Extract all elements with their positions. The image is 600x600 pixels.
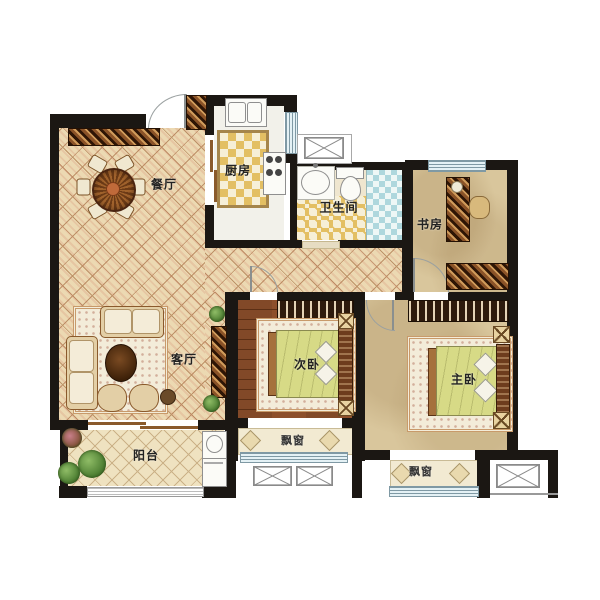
armchair: [129, 384, 159, 412]
stool: [160, 389, 176, 405]
corridor-floor: [205, 245, 410, 292]
master-wardrobe: [408, 300, 509, 322]
room-label-master: 主卧: [451, 371, 477, 388]
kitchen-sliding-door: [214, 170, 217, 202]
flower-pot-icon: [62, 428, 82, 448]
nightstand: [493, 412, 510, 429]
master-headboard: [496, 344, 510, 420]
study-window: [428, 160, 486, 172]
room-label-study: 书房: [417, 216, 443, 233]
room-label-bay-window: 飘窗: [409, 463, 433, 479]
coffee-table: [105, 344, 137, 382]
nightstand: [493, 326, 510, 343]
master-door-leaf: [392, 300, 394, 330]
wall-segment: [402, 162, 413, 300]
master-bay-glass: [389, 486, 479, 497]
ac-unit-icon: [253, 466, 292, 486]
potted-plant-icon: [203, 395, 220, 412]
dining-chair: [77, 179, 91, 196]
ac-unit-icon: [496, 464, 540, 488]
wall-segment: [205, 240, 302, 248]
bedroom2-door-leaf: [250, 266, 252, 292]
desk-lamp-icon: [451, 181, 463, 193]
bedroom2-bay-glass: [240, 452, 348, 463]
room-label-bathroom: 卫生间: [319, 199, 358, 216]
room-label-living: 客厅: [171, 351, 197, 368]
room-label-bedroom2: 次卧: [294, 356, 320, 373]
ac-unit-icon: [304, 137, 344, 159]
balcony-sliding-door: [88, 422, 146, 425]
washing-machine-lid-line: [204, 462, 223, 464]
room-label-dining: 餐厅: [151, 176, 177, 193]
entry-door-arc: [148, 94, 187, 129]
kitchen-sliding-door: [210, 140, 213, 172]
balcony-window: [87, 487, 204, 497]
bathroom-door-threshold: [302, 241, 340, 249]
study-chair: [469, 196, 490, 219]
wall-segment: [352, 460, 362, 498]
nightstand: [338, 313, 354, 329]
bathroom-basin: [301, 170, 330, 195]
study-door-leaf: [413, 258, 415, 292]
stove-burner: [275, 169, 282, 176]
toilet-bowl: [340, 176, 361, 201]
stove-burner: [266, 156, 273, 163]
kitchen-sink-basin: [228, 102, 246, 123]
entry-cabinet: [186, 95, 207, 130]
wall-segment: [59, 486, 87, 498]
tv-cabinet: [211, 326, 227, 398]
room-label-kitchen: 厨房: [225, 162, 251, 179]
sofa-cushion: [104, 309, 132, 334]
faucet-icon: [313, 163, 318, 168]
bedroom2-headboard: [338, 328, 353, 402]
dining-table-centerpiece: [106, 182, 120, 196]
balcony-plant-icon: [58, 462, 80, 484]
niche-edge-line: [490, 493, 558, 495]
study-wardrobe: [446, 263, 509, 290]
shower-area: [366, 163, 403, 240]
room-label-balcony: 阳台: [133, 447, 159, 464]
stove-burner: [266, 169, 273, 176]
wall-segment: [50, 114, 59, 424]
nightstand: [338, 400, 354, 416]
wall-segment: [205, 205, 214, 248]
floorplan-canvas: 餐厅 厨房 卫生间 书房 客厅 次卧 主卧 阳台 飘窗 飘窗: [0, 0, 600, 600]
balcony-sliding-door: [140, 426, 198, 429]
dining-sideboard: [68, 128, 160, 146]
wall-segment: [338, 240, 410, 248]
wall-segment: [290, 163, 297, 240]
kitchen-sink-basin: [247, 102, 262, 123]
ac-unit-icon: [296, 466, 333, 486]
armchair: [97, 384, 127, 412]
wall-segment: [548, 450, 558, 498]
stove-burner: [275, 156, 282, 163]
sofa-cushion: [69, 372, 94, 404]
room-label-bay-window: 飘窗: [281, 432, 305, 448]
sofa-cushion: [132, 309, 160, 334]
wall-segment: [50, 114, 146, 128]
balcony-basin: [206, 435, 223, 453]
balcony-plant-icon: [78, 450, 106, 478]
sofa-cushion: [69, 340, 94, 372]
wall-segment: [284, 95, 297, 112]
potted-plant-icon: [209, 306, 225, 322]
